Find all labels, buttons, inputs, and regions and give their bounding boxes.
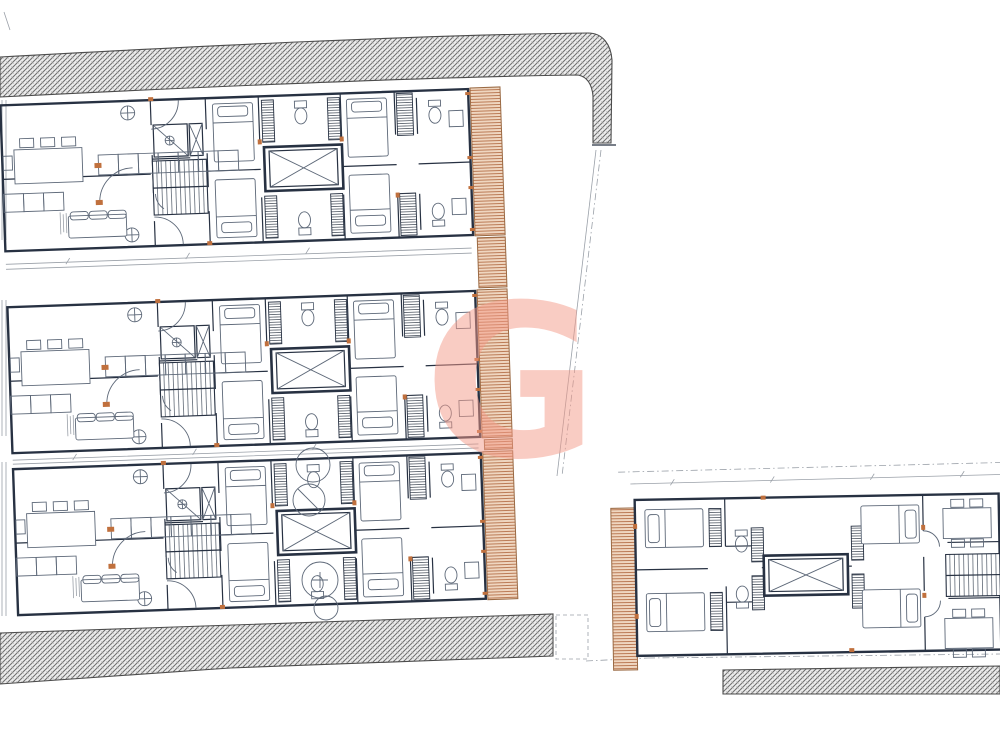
balcony-deck: [611, 508, 638, 670]
watermark-letter: G: [424, 259, 598, 506]
stray-mark: [4, 12, 10, 30]
unit-1: [0, 85, 505, 252]
stairs: [946, 554, 1000, 597]
boundary-notch: [556, 615, 588, 659]
elevator: [764, 554, 849, 595]
perimeter-hatch-band-bottom-left: [0, 614, 553, 684]
bed: [646, 593, 705, 632]
dining-table: [943, 499, 992, 548]
wardrobe: [709, 508, 722, 546]
corridor-door-arcs: [923, 531, 940, 617]
perimeter-hatch-band-bottom-right: [723, 666, 1000, 694]
floor-plan-sheet: G: [0, 0, 1000, 750]
wardrobe: [751, 528, 764, 562]
wardrobe: [752, 576, 765, 610]
bed: [645, 509, 704, 548]
toilet: [735, 530, 747, 552]
bed: [862, 589, 921, 628]
perimeter-hatch-band-top: [0, 33, 612, 143]
wardrobe: [710, 592, 723, 630]
dimension-lines-top: [618, 463, 1000, 487]
building-right: [610, 463, 1000, 671]
bed: [861, 505, 920, 544]
toilet: [736, 586, 748, 608]
floor-plan-drawing: G: [0, 0, 1000, 750]
